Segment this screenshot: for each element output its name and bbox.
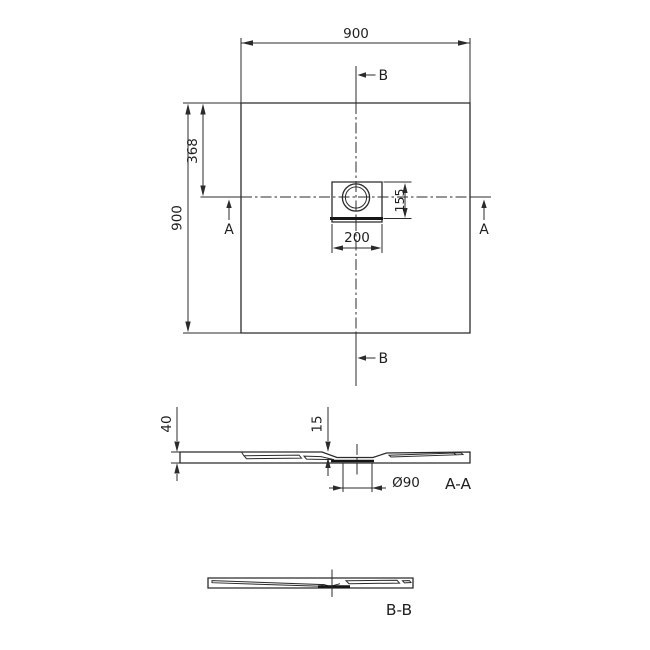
plan-view: 900 900 368 155 200 [170, 26, 492, 386]
arrowheads [174, 442, 179, 474]
section-marker-b-top: B [358, 68, 389, 84]
dim-inner-depth-value: 15 [310, 415, 326, 432]
arrowhead [481, 200, 486, 209]
arrowhead [358, 355, 367, 360]
drain-cover-outline [332, 182, 382, 222]
dim-width-value: 900 [343, 26, 369, 42]
marker-b-label: B [379, 351, 389, 367]
marker-a-label: A [479, 222, 489, 238]
section-marker-a-right: A [479, 200, 489, 239]
profile-rib-details [242, 452, 464, 460]
arrowhead [358, 72, 367, 77]
dim-tray-height-value: 40 [159, 415, 175, 432]
dim-drain-cover-155: 155 [384, 182, 412, 219]
dim-drain-diameter-90: Ø90 [329, 463, 420, 492]
section-bb-label: B-B [386, 601, 412, 619]
marker-a-label: A [224, 222, 234, 238]
section-aa-label: A-A [445, 475, 472, 493]
section-marker-a-left: A [224, 200, 234, 239]
section-marker-b-bottom: B [358, 351, 389, 367]
profile-rib-details [212, 580, 411, 586]
dim-tray-height-40: 40 [159, 407, 183, 481]
drawing-svg: 900 900 368 155 200 [0, 0, 650, 650]
dim-drain-cover-width-value: 200 [344, 230, 370, 246]
arrowhead [226, 200, 231, 209]
dim-drain-offset-value: 368 [185, 138, 201, 164]
technical-drawing-canvas: 900 900 368 155 200 [0, 0, 650, 650]
dim-drain-cover-200: 200 [332, 224, 382, 253]
marker-b-label: B [379, 68, 389, 84]
section-aa-view: 40 15 Ø90 A-A [159, 407, 471, 493]
extension-ticks [171, 452, 183, 463]
extension-lines [183, 103, 241, 333]
dim-height-900: 900 [170, 103, 242, 333]
dim-inner-depth-15: 15 [310, 407, 331, 476]
dim-drain-diameter-value: Ø90 [392, 475, 420, 491]
dim-drain-cover-height-value: 155 [392, 189, 407, 213]
section-bb-view: B-B [208, 570, 413, 620]
dim-height-value: 900 [170, 205, 186, 231]
